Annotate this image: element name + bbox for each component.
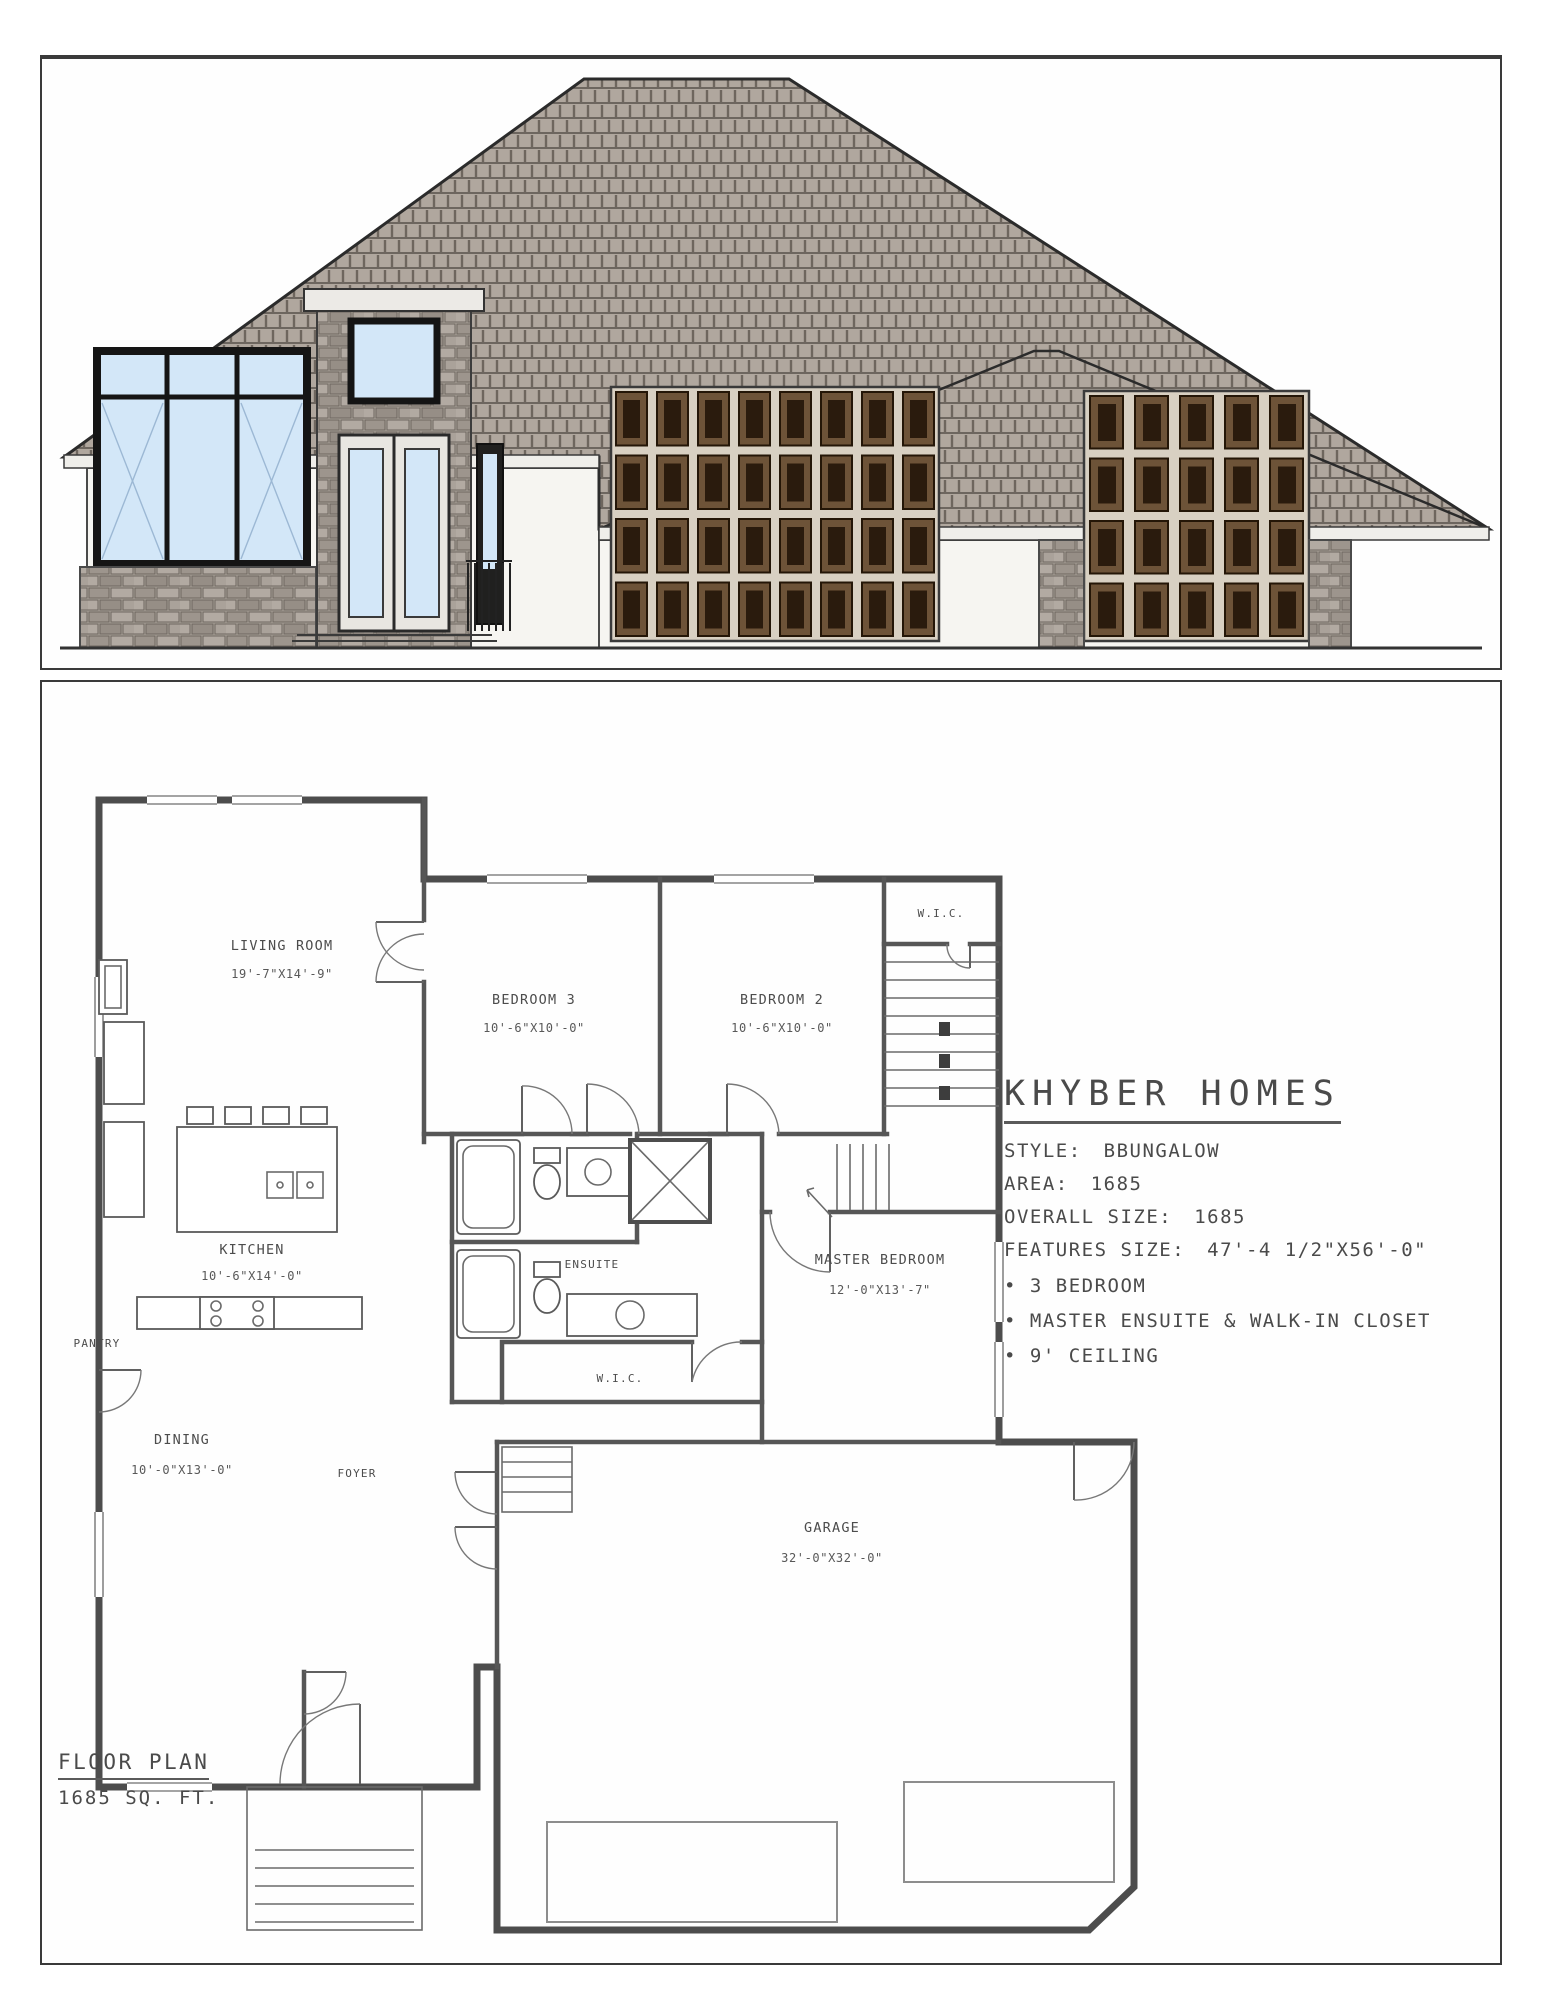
garage-pad-left [547,1822,837,1922]
window-marker [487,872,587,886]
wic-master-door-arc [692,1342,742,1382]
garage-pad-right [904,1782,1114,1882]
room-dim-bedroom-2: 10'-6"X10'-0" [731,1021,833,1035]
window-marker [232,793,302,807]
bath-door-arc [522,1086,572,1134]
stone-wainscot-left [80,567,316,648]
drawing-sheet: LIVING ROOM 19'-7"X14'-9" BEDROOM 3 10'-… [0,0,1546,2000]
room-label-bedroom-3: BEDROOM 3 [492,992,576,1008]
vanity-main [567,1148,629,1196]
room-label-dining: DINING [154,1432,210,1448]
room-label-kitchen: KITCHEN [219,1242,284,1258]
spec-value: BBUNGALOW [1104,1140,1220,1162]
spec-value: 1685 [1091,1173,1143,1195]
transom-window [351,321,437,401]
refrigerator [104,1122,144,1217]
spec-label: FEATURES SIZE: [1004,1239,1185,1261]
toilet-ensuite [534,1262,560,1313]
room-label-master-bedroom: MASTER BEDROOM [815,1252,946,1268]
feature-list: 3 BEDROOM MASTER ENSUITE & WALK-IN CLOSE… [1004,1275,1484,1367]
room-label-garage: GARAGE [804,1520,860,1536]
front-door-arc [280,1704,360,1784]
feature-bullet: MASTER ENSUITE & WALK-IN CLOSET [1004,1310,1484,1332]
entry-door [339,435,449,631]
feature-bullet: 3 BEDROOM [1004,1275,1484,1297]
room-label-wic-top: W.I.C. [918,907,965,920]
window-marker [147,793,217,807]
room-dim-garage: 32'-0"X32'-0" [781,1551,883,1565]
staircase [807,962,999,1217]
room-label-ensuite: ENSUITE [565,1258,620,1271]
left-window [97,351,307,564]
spec-row-overall-size: OVERALL SIZE: 1685 [1004,1206,1484,1228]
stone-pier-center [1039,540,1084,648]
elevation-panel [40,55,1502,670]
spec-label: STYLE: [1004,1140,1082,1162]
room-dim-bedroom-3: 10'-6"X10'-0" [483,1021,585,1035]
stair-lower-flight [807,1144,889,1217]
plan-caption: FLOOR PLAN 1685 SQ. FT. [58,1750,219,1809]
spec-row-features-size: FEATURES SIZE: 47'-4 1/2"X56'-0" [1004,1239,1484,1261]
window-marker [92,1512,106,1597]
spec-label: AREA: [1004,1173,1069,1195]
room-dim-master-bedroom: 12'-0"X13'-7" [829,1283,931,1297]
room-dim-living-room: 19'-7"X14'-9" [231,967,333,981]
kitchen-counter-stove [137,1297,362,1329]
spec-label: OVERALL SIZE: [1004,1206,1172,1228]
vanity-ensuite [567,1294,697,1336]
plan-title: FLOOR PLAN [58,1750,209,1780]
hall-closet-arc [455,1472,497,1514]
plan-area: 1685 SQ. FT. [58,1787,219,1809]
fireplace [99,960,127,1014]
wic-top-door-arc [947,944,970,968]
feature-bullet: 9' CEILING [1004,1345,1484,1367]
spec-value: 1685 [1194,1206,1246,1228]
window-marker [714,872,814,886]
spec-rows: STYLE: BBUNGALOW AREA: 1685 OVERALL SIZE… [1004,1140,1484,1261]
spec-row-style: STYLE: BBUNGALOW [1004,1140,1484,1162]
room-label-foyer: FOYER [337,1467,376,1480]
tower-cap [304,289,484,311]
bedroom2-door-arc [727,1084,779,1134]
room-dim-dining: 10'-0"X13'-0" [131,1463,233,1477]
pantry-door-arc [99,1370,141,1412]
entry-tower [288,289,502,648]
company-name: KHYBER HOMES [1004,1074,1341,1124]
garage-door-right [1084,391,1309,641]
bathtub-main [457,1140,520,1234]
kitchen-cabinet [104,1022,144,1104]
garage-entry-steps [502,1447,572,1512]
bedroom3-door-arc [587,1084,639,1134]
patio-door-arcs [376,922,424,982]
room-label-living-room: LIVING ROOM [231,938,334,954]
garage-door-left [611,387,939,641]
shower-stall [630,1140,710,1222]
elevation-drawing [42,59,1499,667]
hall-closet-arc-2 [455,1527,497,1569]
spec-row-area: AREA: 1685 [1004,1173,1484,1195]
spec-value: 47'-4 1/2"X56'-0" [1207,1239,1427,1261]
foyer-closet-arc [304,1672,346,1714]
room-label-pantry: PANTRY [74,1337,121,1350]
stone-pier-right [1309,540,1351,648]
room-label-wic-master: W.I.C. [597,1372,644,1385]
room-dim-kitchen: 10'-6"X14'-0" [201,1269,303,1283]
bathtub-ensuite [457,1250,520,1338]
toilet-main [534,1148,560,1199]
garage-rear-door-arc [1074,1442,1134,1500]
title-block: KHYBER HOMES STYLE: BBUNGALOW AREA: 1685… [1004,1074,1484,1367]
room-label-bedroom-2: BEDROOM 2 [740,992,824,1008]
porch-steps [247,1787,422,1930]
floor-plan-panel: LIVING ROOM 19'-7"X14'-9" BEDROOM 3 10'-… [40,680,1502,1965]
kitchen-island [177,1107,337,1232]
